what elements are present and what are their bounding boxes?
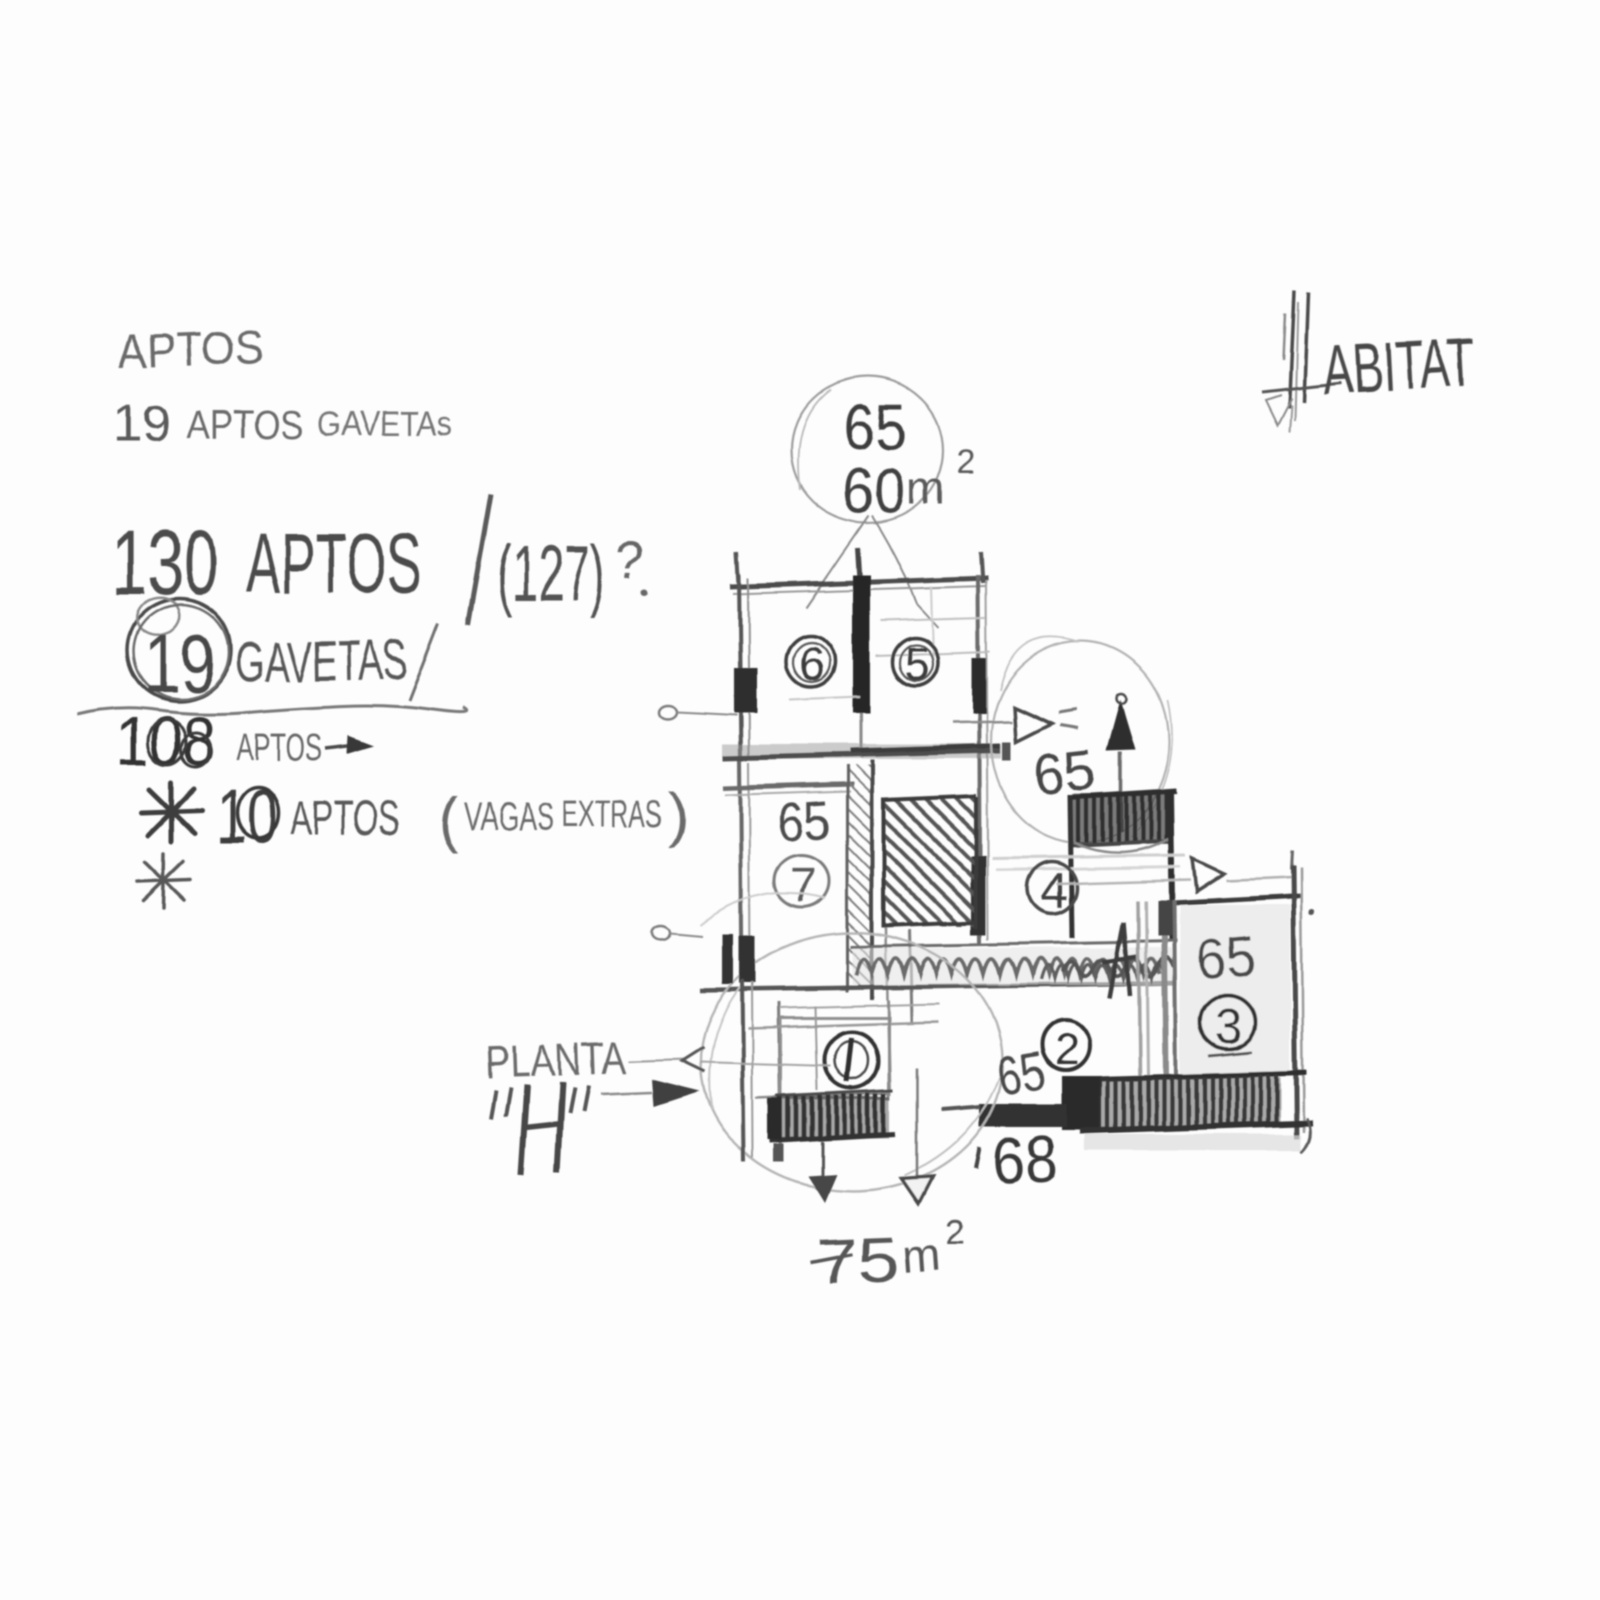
svg-text:65: 65 <box>1194 923 1259 991</box>
svg-text:m: m <box>900 1227 942 1282</box>
svg-text:65: 65 <box>776 789 833 853</box>
svg-text:4: 4 <box>1040 863 1068 919</box>
svg-text:(127): (127) <box>497 529 605 618</box>
svg-text:m: m <box>906 462 944 514</box>
svg-text:APTOS: APTOS <box>186 403 304 447</box>
svg-text:GAVETAS: GAVETAS <box>235 628 408 694</box>
svg-text:ABITAT: ABITAT <box>1321 323 1477 409</box>
svg-text:2: 2 <box>956 442 975 480</box>
svg-text:APTOS: APTOS <box>118 321 265 379</box>
svg-text:19: 19 <box>112 395 170 453</box>
svg-text:PLANTA: PLANTA <box>485 1031 627 1088</box>
svg-text:108: 108 <box>116 702 216 780</box>
svg-text:2: 2 <box>946 1214 965 1252</box>
svg-text:?: ? <box>615 532 643 590</box>
svg-text:6: 6 <box>799 638 826 691</box>
svg-text:APTOS: APTOS <box>246 516 421 610</box>
svg-text:10: 10 <box>216 772 278 860</box>
svg-text:2: 2 <box>1055 1025 1079 1074</box>
svg-text:5: 5 <box>904 638 930 690</box>
svg-text:APTOS: APTOS <box>291 790 399 846</box>
svg-text:65: 65 <box>843 391 907 463</box>
svg-text:3: 3 <box>1215 998 1243 1054</box>
svg-text:60: 60 <box>843 455 905 527</box>
svg-text:EXTRAS: EXTRAS <box>562 794 662 836</box>
svg-text:APTOS: APTOS <box>236 727 322 769</box>
svg-text:19: 19 <box>143 619 216 710</box>
svg-text:7: 7 <box>790 859 817 912</box>
svg-text:): ) <box>668 781 688 848</box>
svg-text:VAGAS: VAGAS <box>464 795 554 839</box>
svg-text:(: ( <box>438 786 458 853</box>
svg-text:GAVETAs: GAVETAs <box>318 405 452 444</box>
svg-text:68: 68 <box>990 1121 1060 1198</box>
